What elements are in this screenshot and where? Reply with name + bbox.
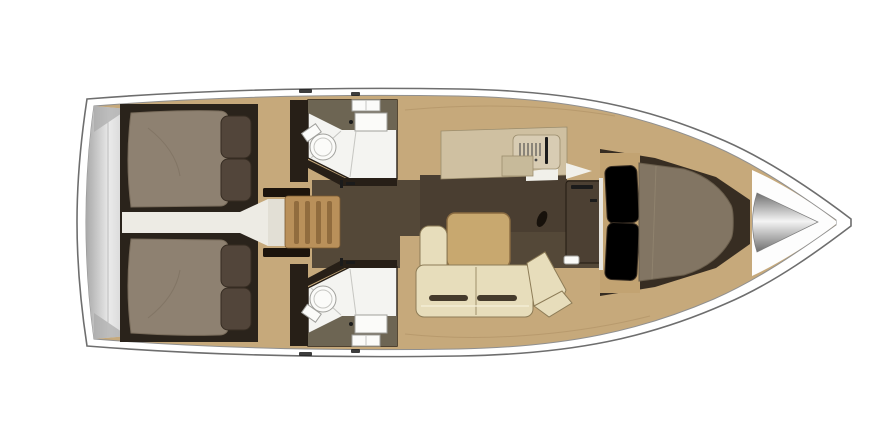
galley [441, 127, 567, 181]
head-outboard-wall-starboard [290, 264, 308, 346]
berth-pillow [221, 116, 251, 158]
fridge-top [502, 156, 533, 176]
door-handle-mark [340, 180, 343, 188]
settee-seats [416, 265, 533, 317]
deck-fitting [299, 352, 312, 356]
aft-berth-mattress-port [128, 111, 228, 207]
aft-cabin-port [128, 111, 251, 207]
door-handle-mark [346, 261, 355, 264]
forward-pillow [605, 165, 640, 224]
settee-slot [429, 295, 468, 301]
yacht-floor-plan-page [0, 0, 890, 446]
forward-bulkhead [599, 178, 603, 270]
deck-fitting [351, 349, 360, 353]
step-tread [327, 201, 332, 244]
head-basin [355, 315, 387, 333]
nav-cabinet [566, 181, 603, 263]
berth-pillow [221, 245, 251, 287]
companionway-landing [268, 199, 287, 246]
salon-floor-wood-patch [400, 236, 420, 268]
step-tread [316, 201, 321, 244]
step-tread [294, 201, 299, 244]
aft-cabin-starboard [128, 239, 251, 335]
berth-pillow [221, 288, 251, 330]
settee-slot [477, 295, 517, 301]
berth-pillow [221, 159, 251, 201]
door-handle-mark [346, 182, 355, 185]
head-outboard-wall-port [290, 100, 308, 182]
door-handle-mark [340, 258, 343, 266]
cabinet-handle [590, 199, 597, 202]
companionway-frame-bar [263, 248, 310, 257]
stove-handle [545, 137, 548, 164]
companionway-corridor [122, 212, 240, 233]
yacht-floor-plan [0, 0, 890, 446]
aft-berth-mattress-starboard [128, 239, 228, 335]
faucet-dot [349, 120, 353, 124]
door-handle-white [564, 256, 579, 264]
deck-fitting [351, 92, 360, 96]
cabinet-handle [571, 185, 593, 189]
forward-pillow [605, 222, 640, 281]
stove-knob [535, 159, 538, 162]
head-basin [355, 113, 387, 131]
nav-station [564, 181, 603, 264]
salon-table [447, 213, 510, 268]
faucet-dot [349, 322, 353, 326]
step-tread [305, 201, 310, 244]
deck-fitting [299, 89, 312, 93]
